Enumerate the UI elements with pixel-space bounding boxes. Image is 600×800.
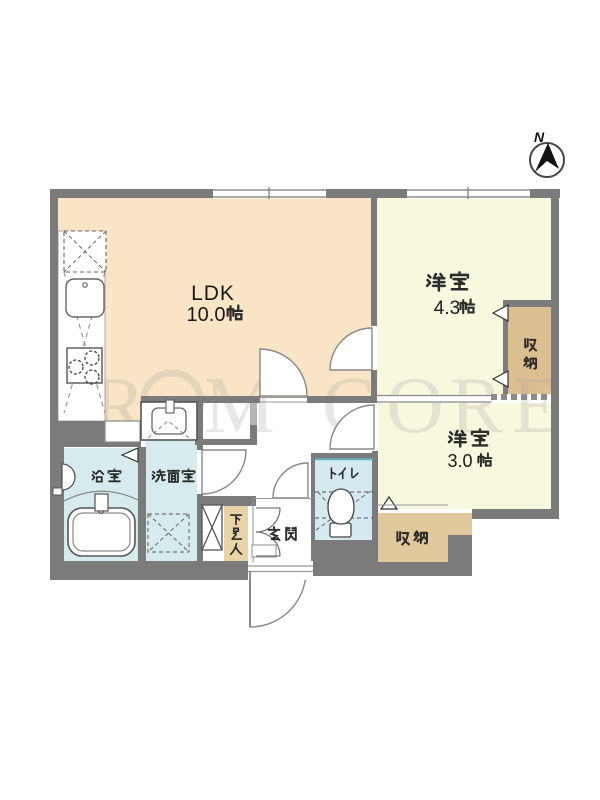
svg-text:N: N bbox=[534, 129, 545, 145]
svg-text:4.3: 4.3 bbox=[434, 298, 460, 319]
svg-text:10.0: 10.0 bbox=[187, 304, 226, 326]
svg-text:LDK: LDK bbox=[191, 282, 235, 305]
svg-text:O: O bbox=[386, 362, 444, 450]
svg-text:3.0: 3.0 bbox=[447, 451, 472, 471]
